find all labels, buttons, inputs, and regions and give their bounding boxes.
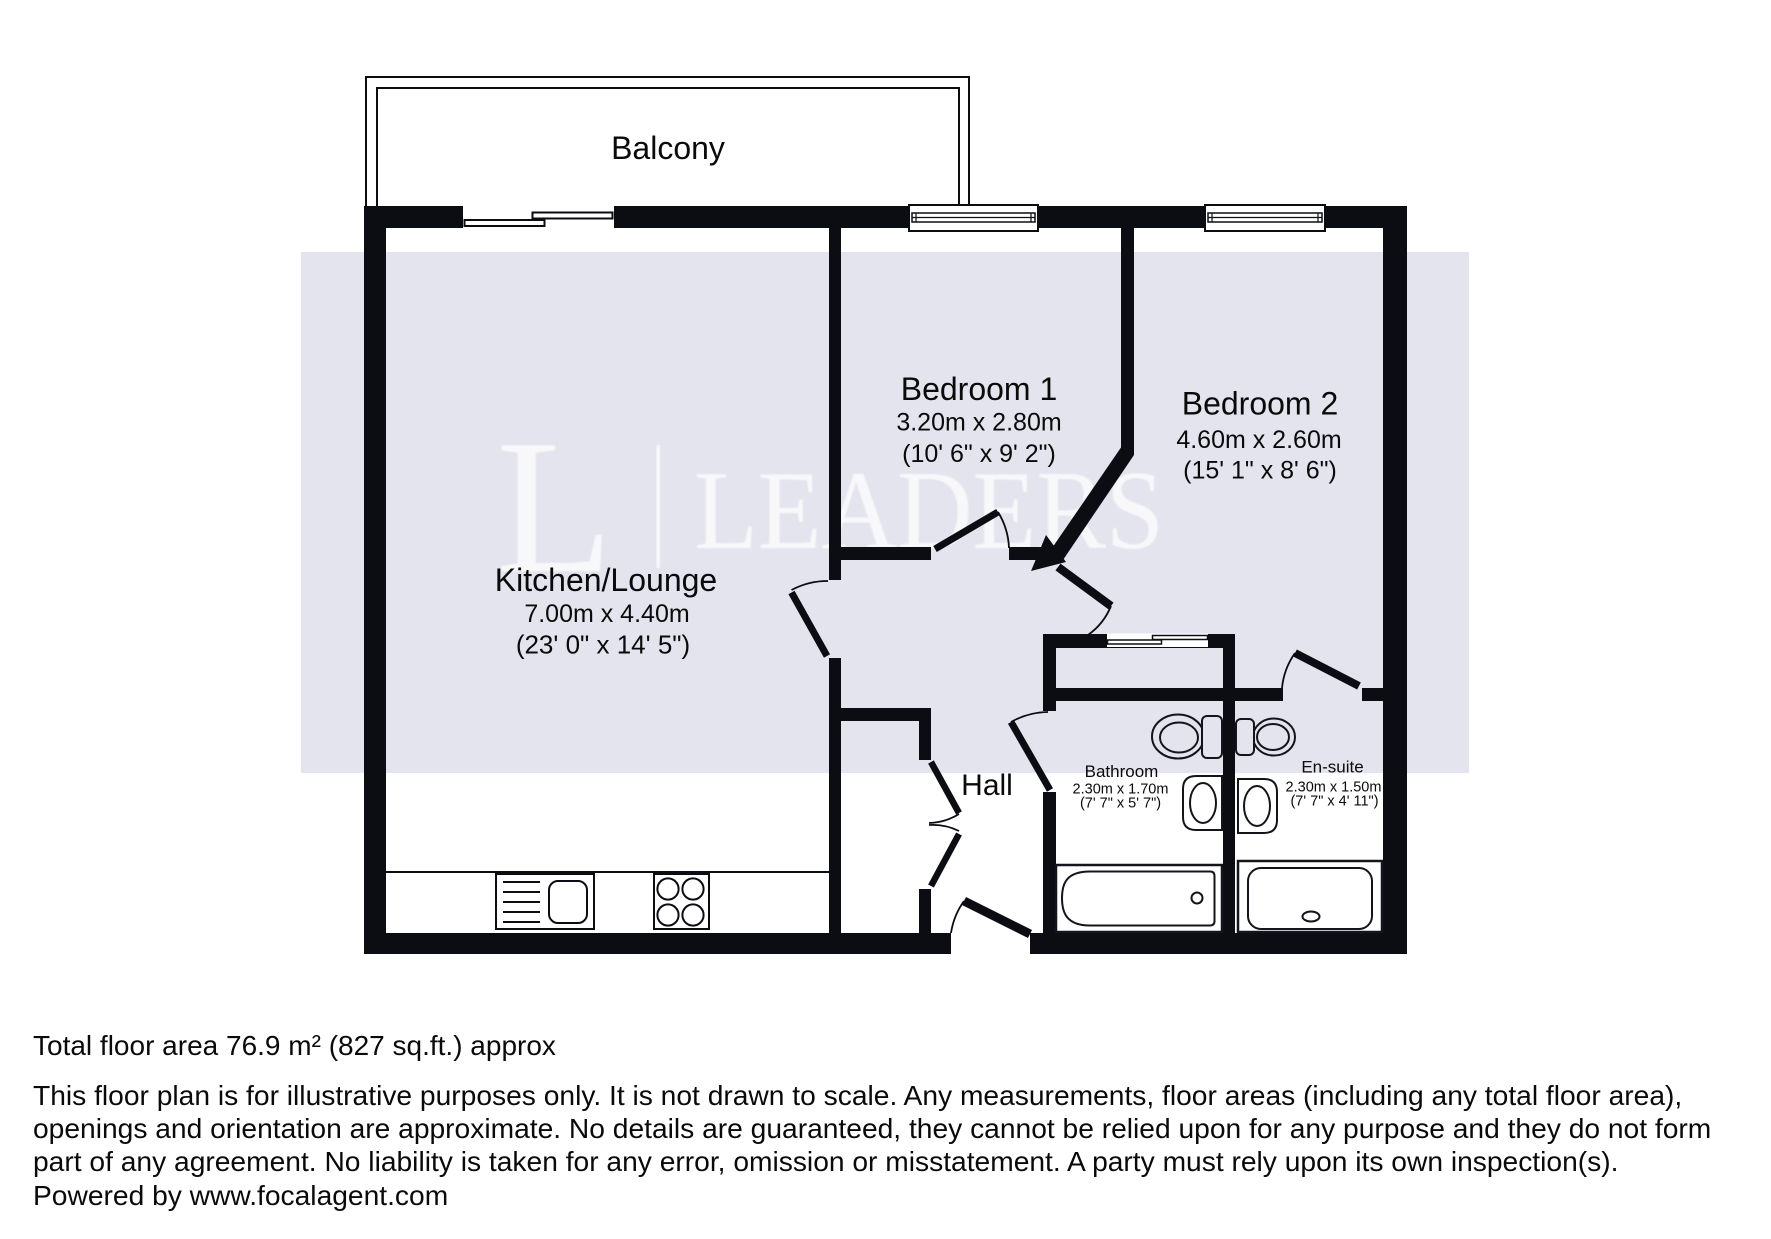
svg-text:En-suite: En-suite <box>1301 758 1363 777</box>
svg-text:Powered by www.focalagent.com: Powered by www.focalagent.com <box>33 1179 448 1211</box>
svg-text:(7' 7" x 4' 11"): (7' 7" x 4' 11") <box>1290 794 1378 810</box>
svg-text:(23' 0" x 14' 5"): (23' 0" x 14' 5") <box>516 630 690 660</box>
svg-text:Total floor area 76.9 m² (827: Total floor area 76.9 m² (827 sq.ft.) ap… <box>33 1030 556 1061</box>
svg-text:(7' 7" x 5' 7"): (7' 7" x 5' 7") <box>1080 796 1161 812</box>
svg-text:Bathroom: Bathroom <box>1085 762 1159 781</box>
svg-text:4.60m x 2.60m: 4.60m x 2.60m <box>1176 426 1341 454</box>
svg-text:Bedroom 2: Bedroom 2 <box>1182 386 1339 422</box>
svg-text:Balcony: Balcony <box>611 130 725 166</box>
svg-text:Bedroom 1: Bedroom 1 <box>901 371 1058 407</box>
svg-text:Hall: Hall <box>961 769 1013 802</box>
svg-text:(10' 6" x 9' 2"): (10' 6" x 9' 2") <box>902 440 1056 468</box>
svg-text:(15' 1" x 8' 6"): (15' 1" x 8' 6") <box>1183 457 1337 485</box>
svg-text:openings and orientation are a: openings and orientation are approximate… <box>33 1112 1711 1144</box>
svg-text:Kitchen/Lounge: Kitchen/Lounge <box>495 562 717 598</box>
svg-text:3.20m x 2.80m: 3.20m x 2.80m <box>896 409 1061 437</box>
svg-text:7.00m x 4.40m: 7.00m x 4.40m <box>524 600 689 628</box>
svg-text:part of any agreement. No liab: part of any agreement. No liability is t… <box>33 1145 1618 1177</box>
svg-text:This floor plan is for illustr: This floor plan is for illustrative purp… <box>33 1079 1682 1111</box>
